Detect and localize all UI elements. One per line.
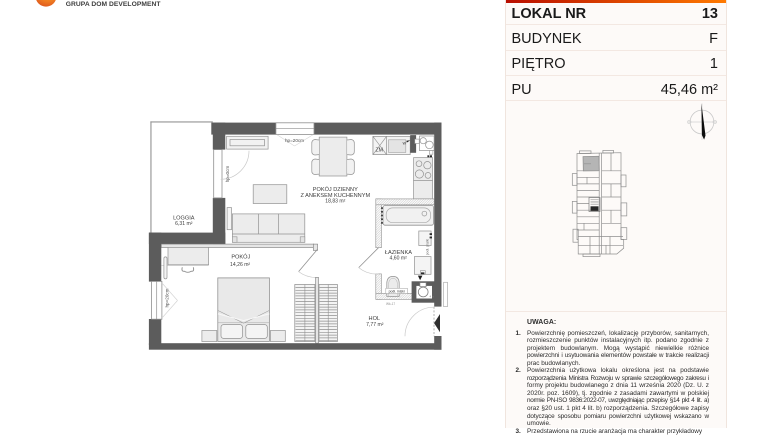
svg-text:GRUPA DOM DEVELOPMENT: GRUPA DOM DEVELOPMENT [66,1,162,8]
svg-text:6,31 m²: 6,31 m² [175,221,193,227]
svg-text:podł. miski: podł. miski [389,289,405,293]
svg-text:4,60 m²: 4,60 m² [390,256,408,262]
svg-text:hp=0cm: hp=0cm [225,166,230,183]
svg-text:7,77 m²: 7,77 m² [366,322,384,328]
svg-text:podł. pralki: podł. pralki [425,239,429,256]
svg-text:hp=20cm: hp=20cm [165,288,170,307]
svg-text:hp=20cm: hp=20cm [285,138,304,143]
svg-text:4 m: 4 m [430,295,435,299]
svg-text:Wk-17: Wk-17 [386,302,395,306]
svg-text:18,83 m²: 18,83 m² [325,199,345,205]
svg-text:ZM: ZM [376,148,384,154]
svg-text:HOL: HOL [369,316,381,322]
svg-text:POKÓJ: POKÓJ [231,254,250,261]
svg-text:14,26 m²: 14,26 m² [230,262,250,268]
